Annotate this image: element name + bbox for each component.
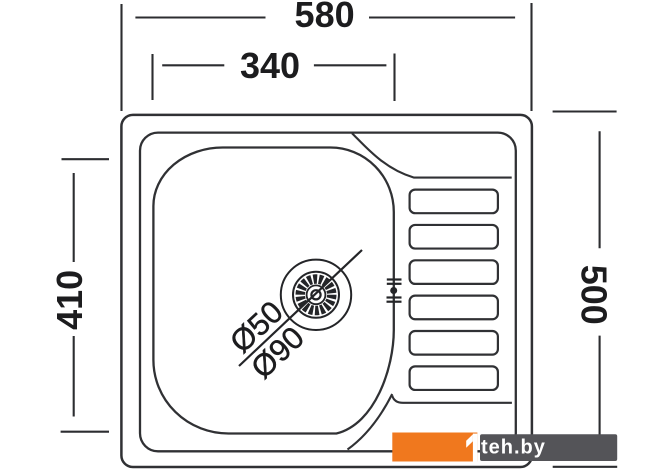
svg-text:500: 500 <box>573 265 614 325</box>
svg-text:580: 580 <box>295 0 355 35</box>
svg-text:410: 410 <box>49 270 90 330</box>
svg-text:teh.by: teh.by <box>481 437 546 459</box>
svg-text:340: 340 <box>240 45 300 86</box>
